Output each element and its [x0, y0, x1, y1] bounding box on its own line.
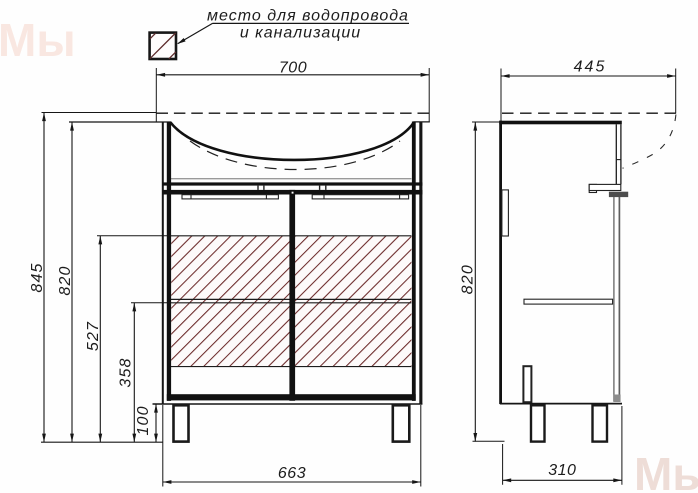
svg-text:845: 845: [29, 262, 46, 292]
svg-text:310: 310: [548, 462, 576, 479]
svg-text:358: 358: [118, 357, 135, 387]
svg-text:445: 445: [574, 59, 607, 76]
svg-text:700: 700: [279, 59, 307, 76]
svg-text:и канализации: и канализации: [240, 25, 361, 42]
svg-text:место для водопровода: место для водопровода: [207, 8, 409, 25]
svg-text:Мы: Мы: [634, 448, 698, 493]
svg-text:820: 820: [460, 264, 477, 294]
svg-text:820: 820: [57, 265, 74, 295]
svg-text:100: 100: [135, 405, 152, 435]
svg-text:Мы: Мы: [0, 14, 76, 66]
svg-text:527: 527: [85, 321, 102, 351]
svg-text:663: 663: [278, 465, 306, 482]
